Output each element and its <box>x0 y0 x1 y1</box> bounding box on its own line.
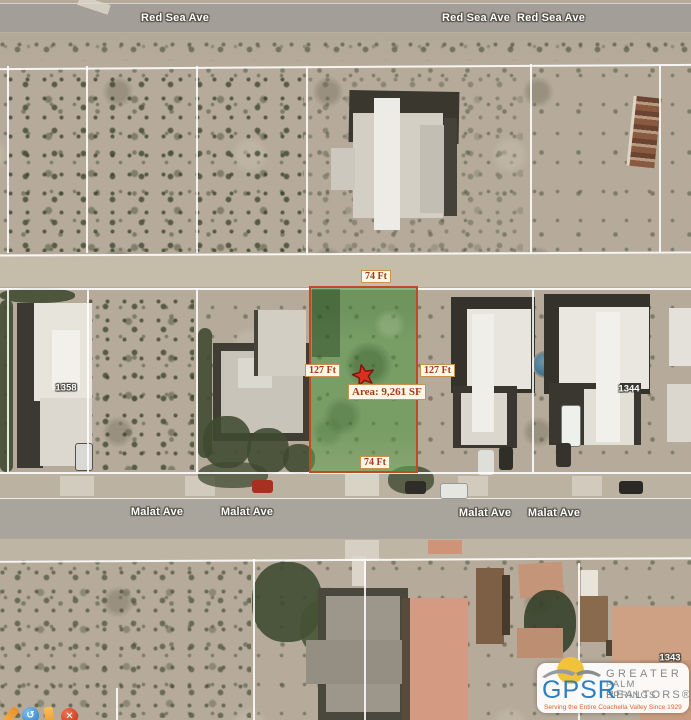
shed-roof <box>476 568 504 644</box>
street-label-red-sea: Red Sea Ave <box>517 12 585 24</box>
map-canvas: 74 Ft 74 Ft 127 Ft 127 Ft Area: 9,261 SF… <box>0 0 691 720</box>
roof-shadow <box>502 575 510 635</box>
lot-boundary-line <box>86 66 88 253</box>
shed-roof <box>578 596 608 642</box>
depth-label-left: 127 Ft <box>305 364 340 377</box>
lot-boundary-line <box>306 66 308 253</box>
tree <box>203 416 251 468</box>
dirt-road-middle <box>0 254 691 287</box>
house-roof <box>420 125 446 213</box>
house-roof <box>667 384 691 442</box>
road-malat-ave <box>0 498 691 540</box>
car <box>499 447 513 470</box>
gpsr-logo: GPSR GREATER PALM SPRINGS REALTORS® Serv… <box>537 663 689 713</box>
driveway <box>572 476 602 496</box>
lot-number-1343: 1343 <box>659 653 680 664</box>
lot-boundary-line <box>532 288 534 472</box>
marker-body <box>44 706 56 720</box>
car <box>619 481 643 494</box>
lot-boundary-line <box>196 288 198 472</box>
house-roof <box>374 98 400 230</box>
house-roof <box>410 598 468 720</box>
driveway <box>60 476 94 496</box>
shed-roof <box>626 96 661 169</box>
house-roof <box>306 640 416 684</box>
tree <box>0 288 75 303</box>
street-label-red-sea: Red Sea Ave <box>141 12 209 24</box>
house-roof <box>596 312 620 442</box>
lot-boundary-line <box>253 559 255 720</box>
street-label-red-sea: Red Sea Ave <box>442 12 510 24</box>
house-roof <box>472 314 494 432</box>
lot-boundary-line <box>87 288 89 472</box>
scrub-patch <box>0 561 251 718</box>
rv-trailer <box>561 405 581 447</box>
scrub-patch <box>88 290 194 470</box>
house-roof <box>52 330 80 390</box>
delete-icon[interactable]: ✕ <box>61 708 78 720</box>
lot-boundary-line <box>7 66 9 253</box>
truck <box>440 483 468 499</box>
frontage-label-top: 74 Ft <box>361 270 391 283</box>
house-roof <box>517 628 563 658</box>
lot-boundary-line <box>196 66 198 253</box>
depth-label-right: 127 Ft <box>420 364 455 377</box>
street-label-malat: Malat Ave <box>131 506 183 518</box>
scrub-patch <box>0 33 691 61</box>
lot-boundary-line <box>7 288 9 472</box>
house-roof <box>581 570 598 598</box>
scrub-patch <box>8 68 304 252</box>
marker-icon[interactable] <box>45 707 54 720</box>
lot-number-1358: 1358 <box>55 383 76 394</box>
street-label-malat: Malat Ave <box>528 507 580 519</box>
car <box>405 481 426 494</box>
driveway <box>345 474 379 496</box>
lot-boundary-line <box>364 559 366 720</box>
car <box>75 443 93 471</box>
house-roof <box>258 310 306 376</box>
logo-acronym: GPSR <box>542 676 617 705</box>
lot-number-1344: 1344 <box>618 384 639 395</box>
street-label-malat: Malat Ave <box>221 506 273 518</box>
lot-boundary-line <box>116 688 118 720</box>
frontage-label-bottom: 74 Ft <box>360 456 390 469</box>
roof-shadow <box>444 118 457 216</box>
car-red <box>252 480 273 493</box>
car <box>556 443 571 467</box>
area-label: Area: 9,261 SF <box>348 384 426 400</box>
parcel-tree-shadow <box>312 289 340 357</box>
lot-boundary-line <box>659 64 661 253</box>
street-label-malat: Malat Ave <box>459 507 511 519</box>
pencil-icon[interactable] <box>3 705 11 720</box>
logo-line3: REALTORS® <box>606 689 691 701</box>
rotate-icon[interactable]: ↺ <box>22 707 39 720</box>
house-roof <box>428 540 462 554</box>
house-roof <box>669 308 691 366</box>
lot-boundary-line <box>530 64 532 253</box>
house-roof <box>331 148 355 190</box>
